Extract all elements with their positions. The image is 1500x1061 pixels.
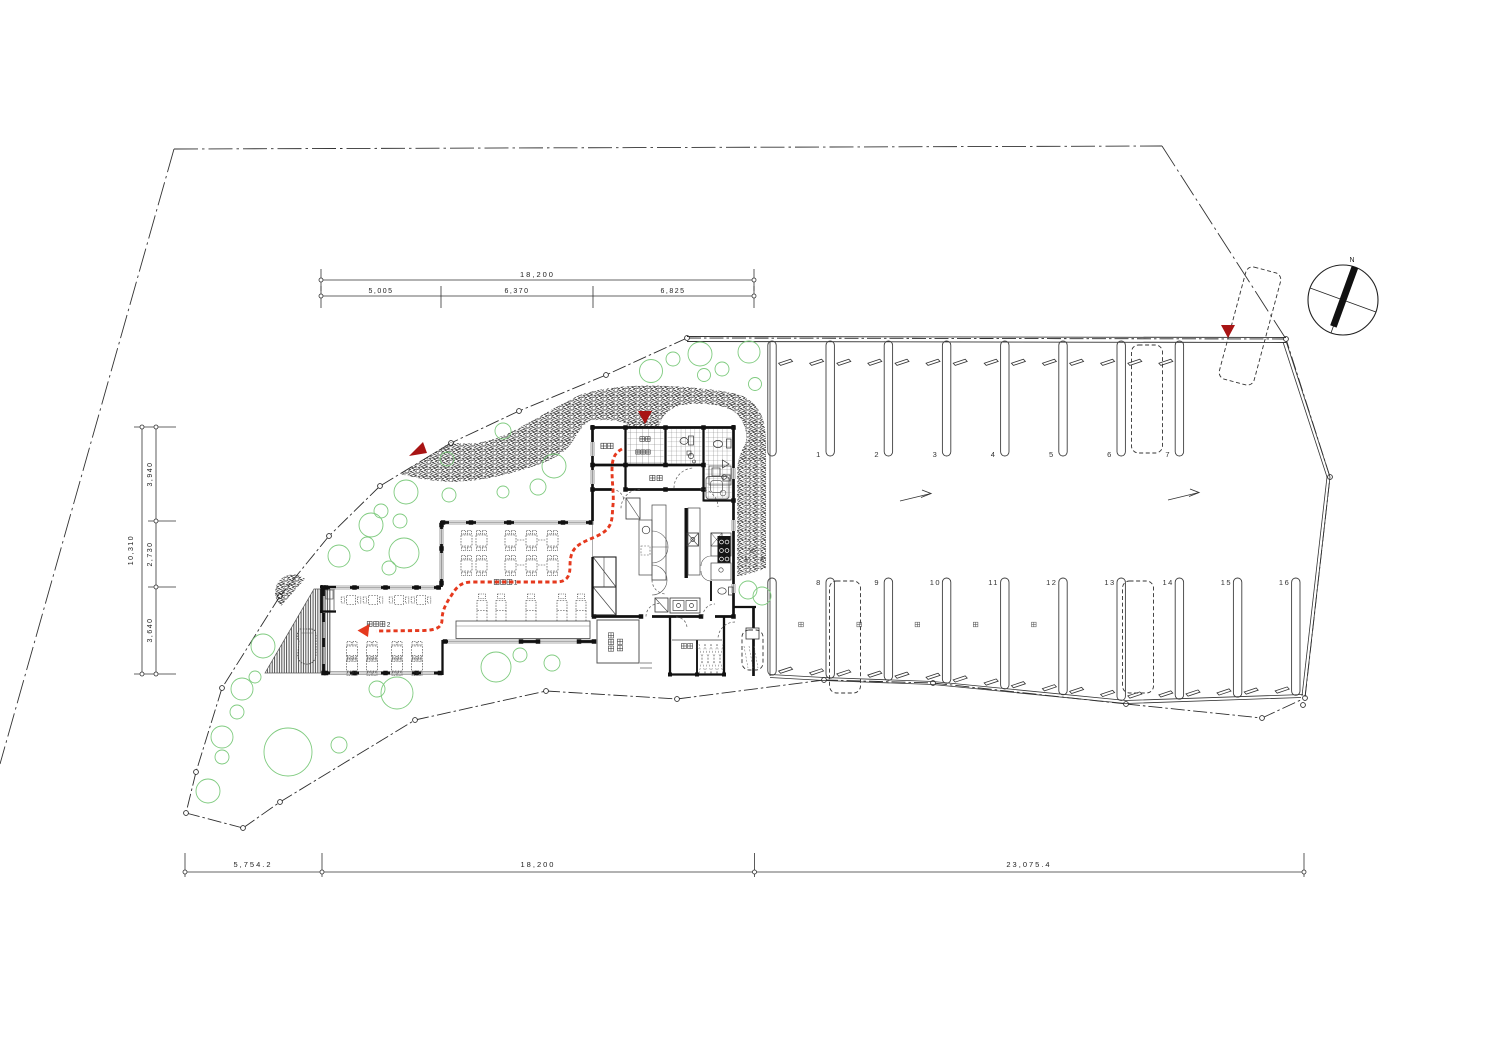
svg-text:N: N [1349, 257, 1354, 264]
svg-text:6,370: 6,370 [504, 288, 529, 295]
svg-text:14: 14 [1163, 578, 1174, 587]
svg-text:3: 3 [933, 450, 939, 459]
svg-text:1: 1 [816, 450, 822, 459]
svg-text:13: 13 [1104, 578, 1115, 587]
svg-text:5,754.2: 5,754.2 [233, 860, 272, 869]
svg-text:2: 2 [387, 622, 391, 629]
svg-text:16: 16 [1279, 578, 1290, 587]
svg-text:2: 2 [874, 450, 880, 459]
svg-text:15: 15 [1221, 578, 1232, 587]
svg-text:5,005: 5,005 [368, 288, 393, 295]
svg-text:12: 12 [1046, 578, 1057, 587]
svg-text:3,640: 3,640 [147, 617, 154, 642]
svg-text:10: 10 [930, 578, 941, 587]
svg-text:5: 5 [1049, 450, 1055, 459]
svg-text:10,310: 10,310 [128, 535, 135, 565]
svg-text:8: 8 [816, 578, 822, 587]
svg-text:6,825: 6,825 [660, 288, 685, 295]
svg-text:7: 7 [1165, 450, 1171, 459]
svg-text:4: 4 [991, 450, 997, 459]
svg-text:11: 11 [988, 578, 999, 587]
svg-text:18,200: 18,200 [521, 860, 556, 869]
svg-text:6: 6 [1107, 450, 1113, 459]
svg-text:2,730: 2,730 [147, 541, 154, 566]
svg-text:3,940: 3,940 [147, 461, 154, 486]
svg-text:9: 9 [874, 578, 880, 587]
svg-text:18,200: 18,200 [520, 270, 555, 279]
svg-text:23,075.4: 23,075.4 [1006, 860, 1051, 869]
